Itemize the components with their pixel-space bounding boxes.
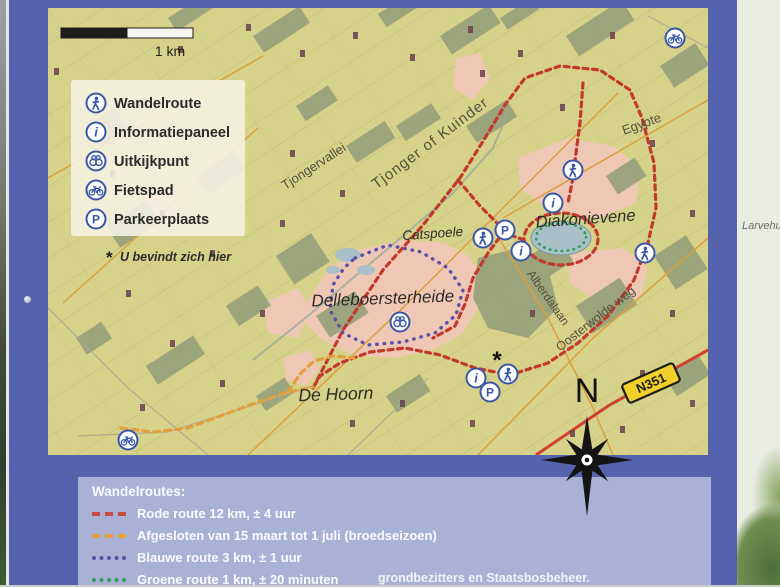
map-walker-icon-catspoele: [474, 229, 493, 248]
blue-route-swatch: [92, 556, 126, 560]
route-row-blue: Blauwe route 3 km, ± 1 uur: [92, 550, 711, 565]
routes-panel-footer: grondbezitters en Staatsbosbeheer.: [378, 571, 590, 585]
map-viewpoint-icon: [391, 313, 410, 332]
green-route-swatch: [92, 578, 126, 582]
legend-label-fietspad: Fietspad: [114, 183, 174, 199]
closed-route-swatch: [92, 534, 126, 538]
you-are-here-symbol: *: [106, 248, 113, 267]
route-row-closed: Afgesloten van 15 maart tot 1 juli (broe…: [92, 528, 711, 543]
legend-label-informatiepaneel: Informatiepaneel: [114, 125, 230, 141]
label-de-hoorn: De Hoorn: [298, 383, 374, 406]
map-walker-icon-south: [499, 365, 518, 384]
you-are-here-label: U bevindt zich hier: [120, 250, 232, 264]
map-info-icon-mid: [512, 242, 531, 261]
compass-rose: N: [534, 368, 644, 518]
adjacent-panel-text: Larvehu: [742, 220, 780, 232]
bolt: [24, 296, 31, 303]
legend-label-uitkijkpunt: Uitkijkpunt: [114, 154, 189, 170]
map-parking-icon-south: [481, 383, 500, 402]
legend-label-parkeerplaats: Parkeerplaats: [114, 212, 209, 228]
map-bicycle-icon-sw: [119, 431, 138, 450]
map-info-icon-north: [544, 194, 563, 213]
red-route-label: Rode route 12 km, ± 4 uur: [137, 506, 296, 521]
red-route-swatch: [92, 512, 126, 516]
map-bicycle-icon-ne: [666, 29, 685, 48]
map-walker-icon-north: [564, 161, 583, 180]
plant-foliage: [735, 420, 780, 585]
legend-label-wandelroute: Wandelroute: [114, 96, 201, 112]
compass-star: [541, 416, 633, 516]
information-sign: i: [6, 0, 737, 585]
closed-route-label: Afgesloten van 15 maart tot 1 juli (broe…: [137, 528, 437, 543]
map-walker-icon-east: [636, 244, 655, 263]
compass-north-letter: N: [575, 372, 600, 410]
scale-label: 1 km: [155, 43, 185, 59]
blue-route-label: Blauwe route 3 km, ± 1 uur: [137, 550, 302, 565]
map-parking-icon-north: [496, 221, 515, 240]
